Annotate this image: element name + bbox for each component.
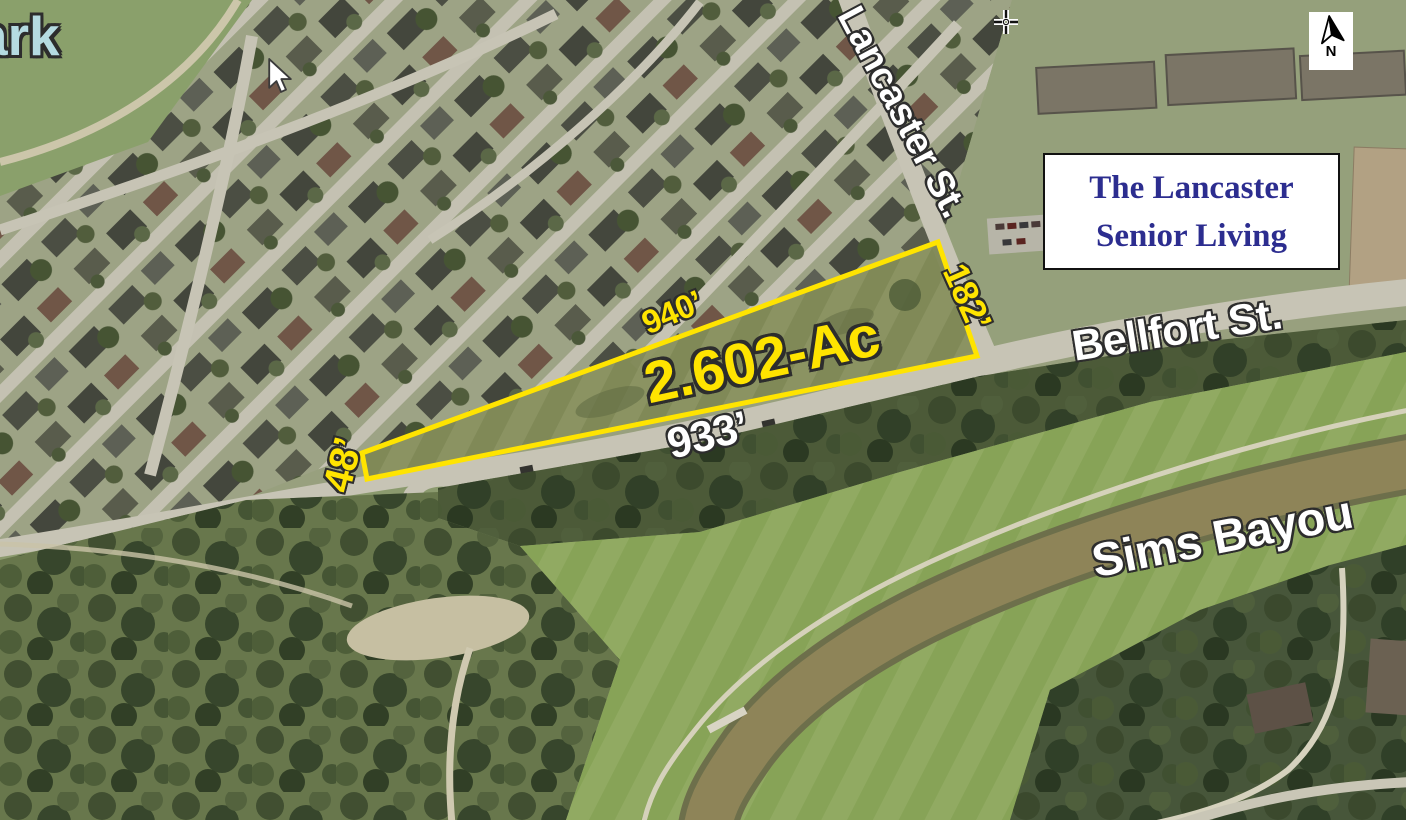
callout-box: The Lancaster Senior Living	[1043, 153, 1340, 270]
arrow-pointer-cursor-icon	[267, 58, 292, 95]
aerial-photo-background	[0, 0, 1406, 820]
callout-line1: The Lancaster	[1045, 164, 1338, 212]
park-label: Robert C Stuart Park	[0, 0, 703, 72]
aerial-map[interactable]: Lancaster St. Bellfort St. Sims Bayou 2.…	[0, 0, 1406, 820]
callout-line2: Senior Living	[1045, 212, 1338, 260]
crosshair-cursor-icon	[993, 9, 1019, 35]
north-arrow-icon	[1317, 15, 1345, 45]
north-arrow-box: N	[1309, 12, 1353, 70]
park-label-line2: Park	[0, 0, 703, 72]
north-label: N	[1326, 45, 1337, 59]
